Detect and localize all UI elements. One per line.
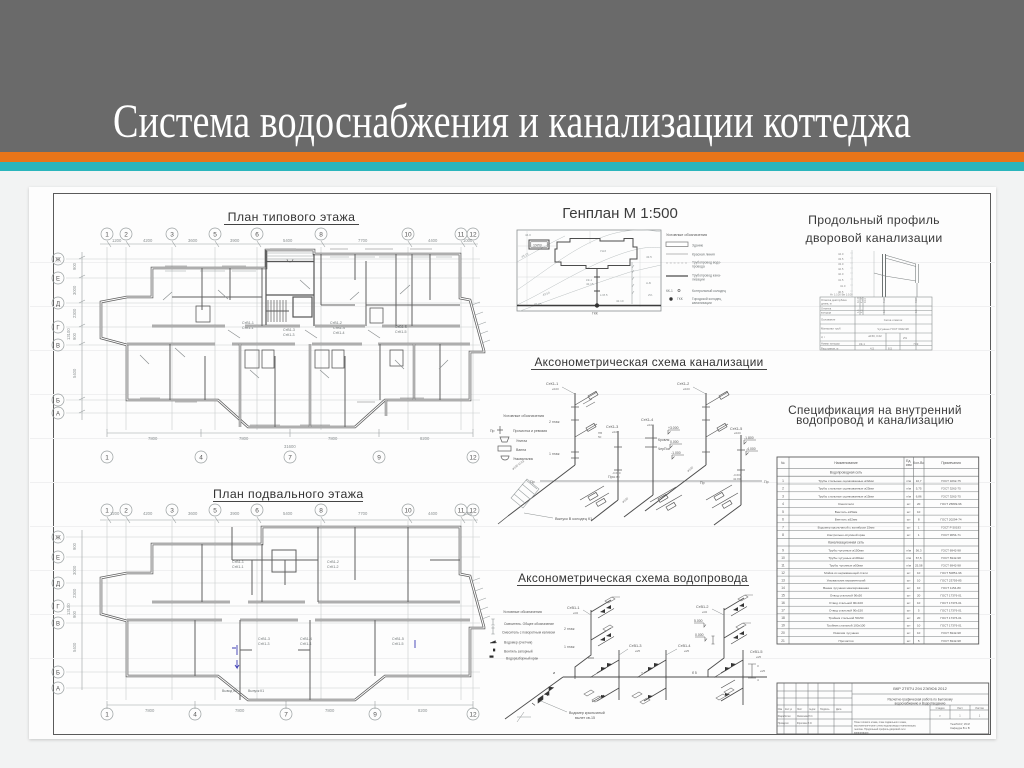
svg-text:Основание: Основание	[821, 318, 836, 322]
svg-text:7: 7	[284, 712, 288, 719]
svg-text:Наименование: Наименование	[834, 461, 858, 465]
svg-text:+3.000: +3.000	[668, 426, 679, 430]
svg-text:10: 10	[917, 631, 921, 635]
svg-text:7800: 7800	[145, 708, 155, 713]
svg-text:Отвод стальной 90х50: Отвод стальной 90х50	[830, 594, 863, 598]
svg-text:Кол.уч: Кол.уч	[785, 708, 793, 711]
svg-text:12: 12	[781, 571, 785, 575]
svg-text:8: 8	[782, 533, 784, 537]
svg-text:8.5: 8.5	[888, 346, 892, 350]
svg-text:900: 900	[72, 610, 77, 618]
svg-text:-1.000: -1.000	[671, 451, 681, 455]
svg-text:ø100: ø100	[686, 465, 694, 473]
svg-text:Условные обозначения: Условные обозначения	[666, 233, 707, 237]
svg-text:12: 12	[469, 455, 477, 462]
svg-text:СтК1-2: СтК1-2	[327, 565, 339, 569]
svg-text:ø100: ø100	[612, 430, 619, 434]
svg-text:Контрольный колодец: Контрольный колодец	[692, 289, 726, 293]
svg-text:Смеситель с поворотным изливом: Смеситель с поворотным изливом	[502, 631, 556, 635]
svg-text:10: 10	[917, 586, 921, 590]
svg-text:СтВ1-5: СтВ1-5	[395, 325, 407, 329]
svg-text:Водомер (счетчик): Водомер (счетчик)	[504, 641, 532, 645]
svg-text:шт: шт	[907, 609, 911, 613]
svg-text:10: 10	[917, 624, 921, 628]
svg-text:Водопроводная сеть: Водопроводная сеть	[830, 471, 863, 475]
svg-text:Канализационная сеть: Канализационная сеть	[828, 541, 864, 545]
svg-text:-4.000: -4.000	[746, 447, 756, 451]
svg-text:3900: 3900	[230, 511, 240, 516]
svg-text:19: 19	[781, 624, 785, 628]
svg-text:Прочистка и ревизия: Прочистка и ревизия	[513, 429, 547, 433]
svg-text:СтК1-1: СтК1-1	[232, 565, 244, 569]
svg-text:20: 20	[917, 594, 921, 598]
svg-text:шт: шт	[907, 510, 911, 514]
svg-text:Умывальник керамический: Умывальник керамический	[827, 579, 866, 583]
svg-text:Трубы стальные оцинкованные ø3: Трубы стальные оцинкованные ø32мм	[818, 479, 874, 483]
svg-text:4: 4	[782, 502, 784, 506]
svg-text:67,6: 67,6	[916, 556, 922, 560]
svg-text:ø25: ø25	[684, 649, 690, 653]
svg-text:Водоразборный кран: Водоразборный кран	[506, 657, 538, 661]
svg-text:Вентиль ø15мм: Вентиль ø15мм	[835, 510, 858, 514]
svg-text:43.0: 43.0	[838, 262, 844, 266]
svg-text:ø25: ø25	[756, 655, 762, 659]
svg-text:8200: 8200	[420, 436, 430, 441]
svg-text:2 этаж: 2 этаж	[564, 627, 575, 631]
svg-text:17: 17	[781, 609, 785, 613]
svg-text:ГОСТ 25809-96: ГОСТ 25809-96	[940, 502, 962, 506]
svg-text:9: 9	[782, 548, 784, 552]
svg-text:ø32: ø32	[702, 610, 708, 614]
svg-text:Смеситель. Общее обозначение: Смеситель. Общее обозначение	[504, 622, 554, 626]
svg-text:7800: 7800	[328, 436, 338, 441]
svg-text:Кровля: Кровля	[658, 438, 669, 442]
svg-text:Трубы чугунные ø100мм: Трубы чугунные ø100мм	[828, 556, 863, 560]
svg-text:Трубы чугунные ø150мм: Трубы чугунные ø150мм	[828, 548, 863, 552]
svg-text:Проверил: Проверил	[778, 722, 790, 725]
svg-text:12: 12	[469, 508, 477, 515]
svg-text:4: 4	[757, 678, 759, 682]
svg-text:СтК1-1: СтК1-1	[242, 326, 254, 330]
svg-text:Ж: Ж	[55, 258, 61, 264]
svg-text:1: 1	[105, 712, 109, 719]
svg-text:1 этаж: 1 этаж	[564, 645, 575, 649]
svg-text:Нг 1:100 Вв 1:100: Нг 1:100 Вв 1:100	[830, 293, 853, 297]
svg-text:п/м: п/м	[906, 479, 911, 483]
svg-text:СтВ1-3: СтВ1-3	[629, 644, 642, 648]
svg-text:Пр: Пр	[490, 429, 495, 433]
svg-text:41.2: 41.2	[883, 298, 886, 303]
svg-text:СтК1-1: СтК1-1	[546, 382, 558, 386]
svg-text:ГКК: ГКК	[914, 342, 919, 346]
svg-text:шт: шт	[907, 579, 911, 583]
svg-text:50: 50	[598, 435, 602, 439]
svg-text:Подпись: Подпись	[820, 708, 830, 711]
svg-text:Изм: Изм	[778, 708, 783, 711]
svg-text:№док: №док	[809, 708, 816, 711]
svg-text:Б: Б	[56, 399, 60, 405]
svg-text:2300: 2300	[72, 588, 77, 598]
svg-text:13100: 13100	[66, 603, 71, 615]
svg-text:шт: шт	[907, 601, 911, 605]
svg-text:шт: шт	[907, 525, 911, 529]
svg-text:СтК1-3: СтК1-3	[258, 642, 270, 646]
svg-text:А: А	[56, 687, 60, 693]
svg-text:10: 10	[917, 510, 921, 514]
svg-text:ГОСТ 6942-98: ГОСТ 6942-98	[941, 548, 961, 552]
svg-text:1200: 1200	[112, 238, 122, 243]
svg-text:Номер колодца: Номер колодца	[821, 342, 840, 346]
svg-text:10: 10	[781, 556, 785, 560]
svg-text:Выпуск К1: Выпуск К1	[248, 689, 264, 693]
svg-text:ГОСТ 17376-01: ГОСТ 17376-01	[940, 594, 962, 598]
svg-text:Пр: Пр	[764, 480, 769, 484]
svg-text:канализации: канализации	[854, 732, 869, 735]
svg-text:16: 16	[781, 601, 785, 605]
svg-text:3: 3	[757, 664, 759, 668]
svg-text:8: 8	[918, 518, 920, 522]
svg-text:Прочистки: Прочистки	[839, 639, 854, 643]
svg-text:ГОСТ 3262-75: ГОСТ 3262-75	[941, 487, 961, 491]
svg-text:2 этаж: 2 этаж	[549, 420, 560, 424]
svg-text:СтВ1-2: СтВ1-2	[696, 605, 709, 609]
svg-text:Чугунные ГОСТ 6942-98: Чугунные ГОСТ 6942-98	[877, 327, 909, 331]
svg-text:1: 1	[105, 232, 109, 239]
svg-text:Кафедра В и В: Кафедра В и В	[950, 726, 969, 730]
svg-text:п/м: п/м	[906, 548, 911, 552]
svg-text:43.5: 43.5	[646, 255, 652, 259]
svg-text:Лист: Лист	[797, 708, 803, 711]
svg-text:изм: изм	[906, 463, 912, 467]
svg-text:СтВ1-1: СтВ1-1	[242, 321, 254, 325]
svg-text:0.000: 0.000	[670, 440, 679, 444]
svg-text:п/м: п/м	[906, 556, 911, 560]
svg-text:42.15: 42.15	[586, 282, 594, 286]
svg-text:13: 13	[781, 579, 785, 583]
svg-text:1: 1	[105, 508, 109, 515]
svg-text:ø32: ø32	[573, 611, 579, 615]
svg-text:Трубы стальные оцинкованные ø1: Трубы стальные оцинкованные ø15мм	[818, 494, 874, 498]
svg-text:ø25: ø25	[635, 649, 641, 653]
svg-text:15: 15	[781, 594, 785, 598]
svg-text:шт: шт	[907, 624, 911, 628]
svg-text:Фролова И.И.: Фролова И.И.	[797, 722, 813, 725]
svg-text:шт: шт	[907, 586, 911, 590]
svg-text:42.05: 42.05	[534, 302, 542, 306]
svg-text:КК-1: КК-1	[859, 342, 865, 346]
svg-text:Условные обозначения: Условные обозначения	[503, 414, 544, 418]
svg-text:Водомер крыльчатый с калибром: Водомер крыльчатый с калибром 15мм	[818, 525, 875, 529]
svg-text:СтВ1-5: СтВ1-5	[392, 637, 404, 641]
svg-text:ø100: ø100	[647, 423, 654, 427]
svg-text:d, i: d, i	[821, 335, 825, 339]
svg-text:шт: шт	[907, 571, 911, 575]
svg-text:п/м: п/м	[906, 487, 911, 491]
svg-text:СтК1-4: СтК1-4	[333, 331, 345, 335]
svg-text:3.2: 3.2	[883, 309, 886, 313]
svg-text:5400: 5400	[72, 368, 77, 378]
svg-text:Сетка отметок: Сетка отметок	[884, 318, 903, 322]
svg-text:длина, м: длина, м	[821, 303, 832, 306]
svg-text:Расстояние, м: Расстояние, м	[821, 346, 838, 350]
svg-text:44.0: 44.0	[525, 233, 531, 237]
svg-text:ГОСТ 3262-75: ГОСТ 3262-75	[941, 494, 961, 498]
svg-text:5: 5	[782, 510, 784, 514]
svg-text:Водомер крыльчатый: Водомер крыльчатый	[569, 711, 605, 715]
svg-text:2: 2	[124, 232, 128, 239]
svg-text:5400: 5400	[72, 642, 77, 652]
svg-text:Отметка дна/глубина: Отметка дна/глубина	[821, 298, 847, 302]
svg-text:В: В	[56, 344, 60, 350]
svg-text:Г: Г	[56, 326, 60, 332]
svg-text:Стадия: Стадия	[936, 706, 945, 710]
svg-text:40.9: 40.9	[915, 298, 918, 303]
svg-text:900: 900	[72, 262, 77, 270]
svg-text:Трубы чугунные ø50мм: Трубы чугунные ø50мм	[829, 563, 862, 567]
svg-text:42.10: 42.10	[616, 299, 624, 303]
svg-text:2: 2	[782, 487, 784, 491]
svg-text:Кол-Во: Кол-Во	[913, 461, 924, 465]
svg-text:п/м: п/м	[906, 563, 911, 567]
svg-text:ГКК: ГКК	[592, 312, 598, 316]
svg-text:Умывальник: Умывальник	[513, 457, 534, 461]
svg-text:6: 6	[255, 508, 259, 515]
svg-text:Отметка: Отметка	[821, 307, 832, 311]
svg-text:7700: 7700	[358, 238, 368, 243]
svg-text:Смесители: Смесители	[838, 502, 854, 506]
svg-text:вылет св-15: вылет св-15	[575, 716, 595, 720]
svg-text:СтВ1-2: СтВ1-2	[327, 560, 339, 564]
svg-text:ГКК: ГКК	[677, 297, 683, 301]
svg-text:КК-1: КК-1	[666, 289, 673, 293]
svg-text:Дата: Дата	[836, 708, 842, 711]
svg-text:СтК1-5: СтК1-5	[392, 642, 404, 646]
svg-text:СтВ1-5: СтВ1-5	[750, 650, 763, 654]
svg-text:5: 5	[213, 508, 217, 515]
svg-text:А-Б: А-Б	[646, 281, 651, 285]
svg-text:6: 6	[782, 518, 784, 522]
svg-text:42.5: 42.5	[838, 267, 844, 271]
svg-text:10: 10	[917, 579, 921, 583]
svg-text:Материал труб: Материал труб	[821, 327, 841, 331]
svg-text:11: 11	[458, 508, 465, 515]
svg-text:20: 20	[917, 616, 921, 620]
svg-text:ГОСТ 6942-98: ГОСТ 6942-98	[941, 631, 961, 635]
svg-text:-1.800: -1.800	[744, 436, 754, 440]
svg-text:31600: 31600	[284, 444, 296, 449]
svg-text:Т: Т	[641, 672, 643, 676]
svg-text:13100: 13100	[66, 328, 71, 340]
svg-text:А: А	[56, 412, 60, 418]
svg-text:ø100: ø100	[734, 431, 741, 435]
svg-text:1: 1	[782, 479, 784, 483]
svg-text:лизации: лизации	[692, 278, 705, 282]
svg-text:3900: 3900	[230, 238, 240, 243]
svg-text:7: 7	[782, 525, 784, 529]
svg-text:56,3: 56,3	[916, 548, 922, 552]
svg-text:7700: 7700	[358, 511, 368, 516]
svg-text:Здание: Здание	[692, 244, 703, 248]
svg-text:3.8: 3.8	[915, 309, 918, 313]
svg-text:шт: шт	[907, 631, 911, 635]
svg-text:7800: 7800	[148, 436, 158, 441]
svg-text:СтВ1-1: СтВ1-1	[567, 606, 580, 610]
svg-text:Красная линия: Красная линия	[692, 253, 715, 257]
svg-text:Унитаз: Унитаз	[516, 439, 527, 443]
svg-text:у: у	[939, 715, 941, 718]
svg-text:б 5: б 5	[692, 671, 697, 675]
svg-text:41.0: 41.0	[840, 284, 846, 288]
svg-text:ГОСТ 50851-96: ГОСТ 50851-96	[940, 571, 962, 575]
svg-text:Трубы стальные оцинкованные ø2: Трубы стальные оцинкованные ø25мм	[818, 487, 874, 491]
svg-text:Тройник стальной 50х50: Тройник стальной 50х50	[828, 616, 863, 620]
svg-text:ГОСТ 6942-98: ГОСТ 6942-98	[941, 556, 961, 560]
svg-text:2: 2	[124, 508, 128, 515]
svg-text:6: 6	[255, 232, 259, 239]
svg-text:1: 1	[918, 525, 920, 529]
svg-text:Д: Д	[56, 582, 60, 588]
svg-text:4400: 4400	[428, 238, 438, 243]
svg-text:10: 10	[917, 601, 921, 605]
svg-text:СтВ1-3: СтВ1-3	[283, 328, 295, 332]
svg-text:2%: 2%	[903, 336, 908, 340]
svg-text:900: 900	[72, 542, 77, 550]
svg-text:Е: Е	[56, 556, 60, 562]
svg-text:14: 14	[781, 586, 785, 590]
svg-text:колодца: колодца	[821, 312, 831, 315]
svg-text:3: 3	[170, 232, 174, 239]
svg-text:12: 12	[469, 712, 477, 719]
svg-text:ГОСТ 17376-01: ГОСТ 17376-01	[940, 609, 962, 613]
svg-text:шт: шт	[907, 616, 911, 620]
svg-text:10: 10	[917, 571, 921, 575]
svg-text:Е: Е	[56, 277, 60, 283]
svg-text:900: 900	[72, 332, 77, 340]
svg-text:3: 3	[170, 508, 174, 515]
svg-text:Г: Г	[56, 605, 60, 611]
svg-text:10: 10	[404, 232, 412, 239]
svg-text:ø: ø	[553, 671, 555, 675]
svg-text:1: 1	[918, 533, 920, 537]
svg-text:СтК1-4: СтК1-4	[300, 642, 312, 646]
svg-text:11: 11	[781, 563, 785, 567]
svg-text:ВКР 2ТбТЧ 294 2ЭЛЮ6 2012: ВКР 2ТбТЧ 294 2ЭЛЮ6 2012	[893, 686, 947, 691]
svg-text:11: 11	[458, 232, 465, 239]
svg-text:ГОСТ 1154-80: ГОСТ 1154-80	[941, 586, 961, 590]
svg-text:4400: 4400	[428, 511, 438, 516]
svg-text:42.0: 42.0	[838, 272, 844, 276]
svg-text:ГОСТ 20294-74: ГОСТ 20294-74	[940, 518, 962, 522]
svg-text:ГОСТ 23759-85: ГОСТ 23759-85	[940, 579, 962, 583]
svg-text:25,58: 25,58	[915, 563, 923, 567]
svg-text:Б: Б	[56, 671, 60, 677]
svg-text:№: №	[781, 461, 785, 465]
svg-text:41.5: 41.5	[838, 278, 844, 282]
svg-text:Ванна: Ванна	[516, 448, 526, 452]
svg-text:4: 4	[193, 712, 197, 719]
svg-text:СтВ1-4: СтВ1-4	[333, 326, 345, 330]
svg-text:шт: шт	[907, 518, 911, 522]
svg-text:ГОСТ 3262-75: ГОСТ 3262-75	[941, 479, 961, 483]
svg-text:7800: 7800	[239, 436, 249, 441]
svg-text:40.3: 40.3	[864, 298, 867, 303]
svg-text:42.80: 42.80	[612, 475, 620, 479]
svg-text:СтВ1-3: СтВ1-3	[258, 637, 270, 641]
svg-text:3: 3	[782, 494, 784, 498]
svg-text:ø100: ø100	[552, 387, 559, 391]
svg-text:ø150, 0.02: ø150, 0.02	[868, 334, 882, 338]
svg-text:0.000: 0.000	[695, 633, 704, 637]
svg-text:канализации: канализации	[692, 301, 712, 305]
svg-text:шт: шт	[907, 533, 911, 537]
svg-text:7: 7	[288, 455, 292, 462]
svg-text:Листов: Листов	[975, 706, 984, 710]
svg-text:4200: 4200	[143, 238, 153, 243]
svg-text:Вывод В1: Вывод В1	[222, 689, 237, 693]
svg-text:Разработал: Разработал	[778, 715, 792, 718]
svg-text:СтК1-3: СтК1-3	[283, 333, 295, 337]
svg-text:ø100: ø100	[683, 387, 690, 391]
svg-text:п/м: п/м	[906, 494, 911, 498]
svg-text:5400: 5400	[283, 511, 293, 516]
svg-text:ГОСТ 17376-01: ГОСТ 17376-01	[940, 624, 962, 628]
svg-text:СтВ1-4: СтВ1-4	[678, 644, 691, 648]
svg-text:43.5: 43.5	[838, 257, 844, 261]
svg-text:10,7: 10,7	[916, 479, 922, 483]
svg-text:7800: 7800	[325, 708, 335, 713]
svg-text:СтК1-2: СтК1-2	[677, 382, 689, 386]
svg-text:5: 5	[918, 609, 920, 613]
svg-text:8: 8	[319, 232, 323, 239]
svg-text:шт: шт	[907, 639, 911, 643]
svg-text:Вентиль запорный: Вентиль запорный	[504, 650, 533, 654]
svg-text:3600: 3600	[188, 511, 198, 516]
svg-text:5.000: 5.000	[694, 619, 703, 623]
svg-text:5: 5	[213, 232, 217, 239]
svg-text:ГОСТ 17376-01: ГОСТ 17376-01	[940, 601, 962, 605]
svg-text:СтВ1-2: СтВ1-2	[330, 321, 342, 325]
svg-text:5,75: 5,75	[916, 487, 922, 491]
svg-text:2%: 2%	[648, 293, 653, 297]
svg-text:5400: 5400	[283, 238, 293, 243]
svg-text:3000: 3000	[72, 565, 77, 575]
svg-text:Отвод стальной 90х100: Отвод стальной 90х100	[829, 601, 863, 605]
svg-text:Д: Д	[56, 302, 60, 308]
svg-text:3000: 3000	[72, 285, 77, 295]
svg-text:водоснабжению и Водоотведению: водоснабжению и Водоотведению	[895, 702, 946, 706]
svg-text:Отвод стальной 90х150: Отвод стальной 90х150	[829, 609, 863, 613]
svg-text:ГОСТ 17376-01: ГОСТ 17376-01	[940, 616, 962, 620]
svg-text:42.80: 42.80	[733, 477, 741, 481]
svg-text:20: 20	[781, 631, 785, 635]
svg-text:Тройник стальной 100х100: Тройник стальной 100х100	[827, 624, 866, 628]
svg-text:СтВ1-1: СтВ1-1	[232, 560, 244, 564]
svg-text:L=8.5: L=8.5	[600, 293, 608, 297]
svg-text:10: 10	[404, 508, 412, 515]
svg-text:8200: 8200	[418, 708, 428, 713]
svg-text:7800: 7800	[235, 708, 245, 713]
svg-text:Пр: Пр	[700, 481, 705, 485]
svg-text:2300: 2300	[72, 308, 77, 318]
svg-text:1: 1	[959, 714, 961, 718]
svg-text:ГОСТ 6942-98: ГОСТ 6942-98	[941, 563, 961, 567]
svg-text:21: 21	[781, 639, 785, 643]
svg-text:Яковлева Л.О.: Яковлева Л.О.	[797, 715, 813, 718]
svg-text:СтВ1-4: СтВ1-4	[300, 637, 312, 641]
svg-text:ГОСТ Р 50193: ГОСТ Р 50193	[941, 525, 961, 529]
svg-text:Ревизия чугунная: Ревизия чугунная	[833, 631, 859, 635]
svg-text:Условные обозначения: Условные обозначения	[503, 610, 542, 614]
